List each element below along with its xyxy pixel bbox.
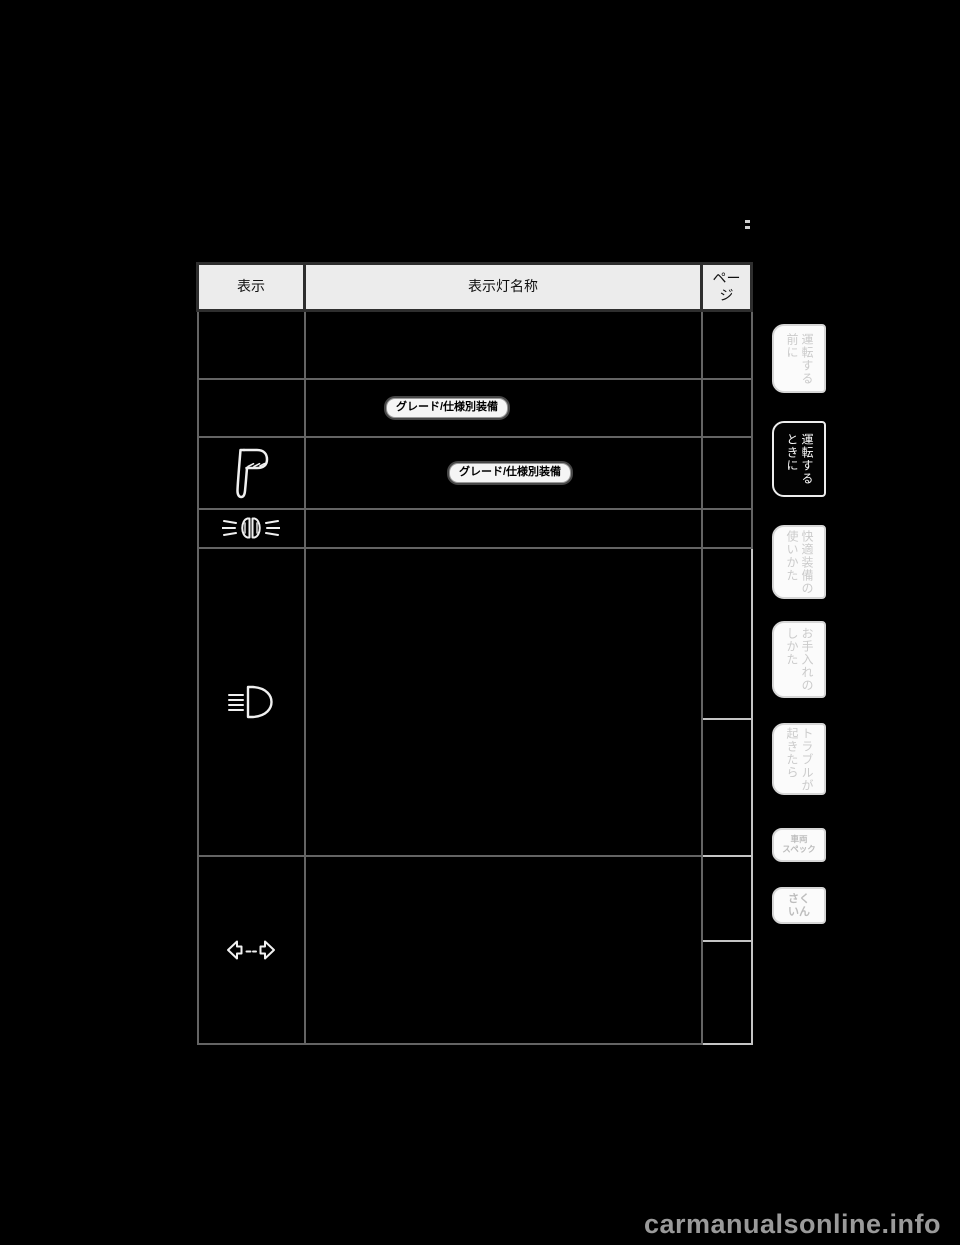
tab-label: トラブルが 起きたら: [784, 727, 814, 792]
table-row: グレード/仕様別装備: [198, 379, 752, 437]
header-page: ペー ジ: [702, 264, 752, 311]
name-cell: グレード/仕様別装備: [305, 379, 702, 437]
tab-label: 運転する ときに: [784, 433, 814, 485]
manual-page: 表示 表示灯名称 ペー ジ グレード/仕様別装備: [0, 0, 960, 1245]
scan-artifact: [745, 220, 750, 223]
indicator-lamp-table: 表示 表示灯名称 ペー ジ グレード/仕様別装備: [196, 262, 753, 1045]
tab-label: 運転する 前に: [784, 333, 814, 385]
page-cell: [702, 437, 752, 509]
headlight-icon: [199, 683, 304, 721]
page-cell: [702, 509, 752, 548]
watermark: carmanualsonline.info: [644, 1209, 941, 1240]
header-indicator-name: 表示灯名称: [305, 264, 702, 311]
table-header-row: 表示 表示灯名称 ペー ジ: [198, 264, 752, 311]
tab-label: お手入れの しかた: [784, 627, 814, 692]
tab-label: さく いん: [788, 893, 810, 918]
page-cell: [702, 379, 752, 437]
tab-when-driving[interactable]: 運転する ときに: [772, 421, 826, 497]
display-cell: [198, 311, 305, 379]
tail-lamp-icon: [199, 514, 304, 542]
tab-index[interactable]: さく いん: [772, 887, 826, 924]
name-cell: [305, 311, 702, 379]
name-cell: [305, 856, 702, 1044]
display-cell: [198, 509, 305, 548]
display-cell: [198, 548, 305, 856]
grade-equipment-badge: グレード/仕様別装備: [449, 463, 571, 483]
tab-before-driving[interactable]: 運転する 前に: [772, 324, 826, 393]
name-cell: [305, 509, 702, 548]
tab-maintenance[interactable]: お手入れの しかた: [772, 621, 826, 698]
page-cell: [702, 941, 752, 1044]
name-cell: グレード/仕様別装備: [305, 437, 702, 509]
tab-label: 車両 スペック: [782, 835, 815, 855]
table-row: [198, 311, 752, 379]
tab-vehicle-spec[interactable]: 車両 スペック: [772, 828, 826, 862]
table-row: [198, 509, 752, 548]
tab-comfort-equipment[interactable]: 快適装備の 使いかた: [772, 525, 826, 599]
scan-artifact: [745, 226, 750, 229]
parking-lamp-icon: [199, 446, 304, 500]
table-row: グレード/仕様別装備: [198, 437, 752, 509]
display-cell: [198, 437, 305, 509]
header-display: 表示: [198, 264, 305, 311]
name-cell: [305, 548, 702, 856]
page-cell: [702, 719, 752, 856]
tab-label: 快適装備の 使いかた: [784, 530, 814, 595]
table-row: [198, 548, 752, 719]
table-row: [198, 856, 752, 941]
turn-signal-icon: [199, 938, 304, 962]
page-cell: [702, 311, 752, 379]
tab-trouble[interactable]: トラブルが 起きたら: [772, 723, 826, 795]
display-cell: [198, 856, 305, 1044]
page-cell: [702, 548, 752, 719]
page-cell: [702, 856, 752, 941]
grade-equipment-badge: グレード/仕様別装備: [386, 398, 508, 418]
display-cell: [198, 379, 305, 437]
